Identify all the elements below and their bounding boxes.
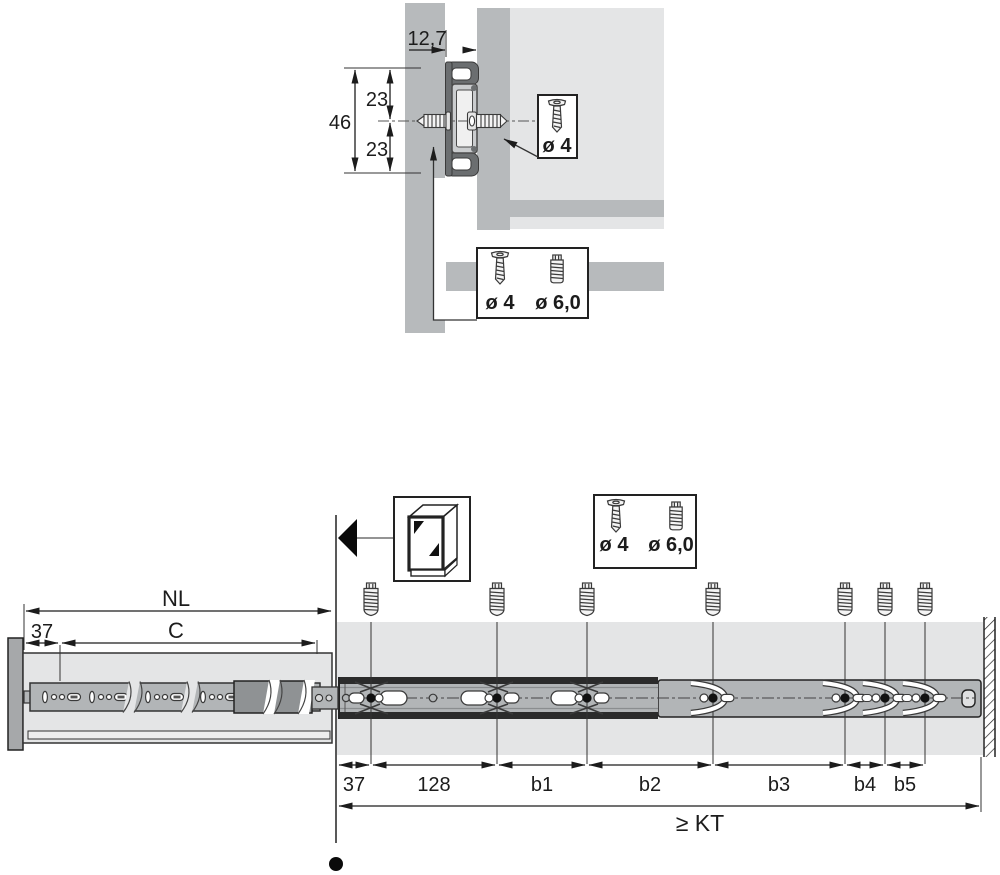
cabinet-depth-dimension: ≥ KT xyxy=(339,757,981,836)
pan-head-screw-icon xyxy=(551,255,563,283)
c-length-label: C xyxy=(168,618,184,643)
front-edge-triangle-marker xyxy=(338,519,357,557)
drawer-front-panel xyxy=(8,638,23,750)
cabinet-3d-icon xyxy=(409,505,457,576)
datum-dot xyxy=(329,857,343,871)
nominal-length-label: NL xyxy=(162,586,190,611)
gap-width-label: 12,7 xyxy=(408,28,447,50)
mounting-screw-icon xyxy=(490,583,504,616)
cabinet-icon-box xyxy=(394,497,470,581)
spacing-b3-label: b3 xyxy=(768,774,790,796)
side-screws-callout-box-bottom: ø 4 ø 6,0 xyxy=(594,495,696,568)
mounting-screw-icon xyxy=(706,583,720,616)
mounting-screw-icon xyxy=(838,583,852,616)
height-total-label: 46 xyxy=(329,112,351,134)
mounting-cross-section: 12,7 46 23 23 ø 4 ø 4 ø 6,0 xyxy=(329,3,664,333)
front-offset-label: 37 xyxy=(31,621,53,643)
drawer-body-section xyxy=(510,8,664,229)
hole-spacing-dimensions: 37 128 b1 b2 b3 b4 b5 xyxy=(339,765,923,796)
drawer-side-view xyxy=(8,638,338,750)
drawer-slide-installation-diagram: 12,7 46 23 23 ø 4 ø 4 ø 6,0 xyxy=(0,0,1000,875)
spacing-b2-label: b2 xyxy=(639,774,661,796)
side-screws-callout-box-top: ø 4 ø 6,0 xyxy=(477,248,588,318)
mounting-screw-icon xyxy=(878,583,892,616)
mounting-screw-icon xyxy=(918,583,932,616)
screw-d4-label: ø 4 xyxy=(600,534,630,556)
drawer-screw-label: ø 4 xyxy=(543,135,573,157)
spacing-b4-label: b4 xyxy=(854,774,876,796)
cabinet-back-panel-hatch xyxy=(984,617,995,757)
screw-d6-label: ø 6,0 xyxy=(648,534,694,556)
mounting-screws-row xyxy=(364,583,932,616)
screw-d6-label: ø 6,0 xyxy=(535,292,581,314)
spacing-b1-label: b1 xyxy=(531,774,553,796)
height-upper-label: 23 xyxy=(366,89,388,111)
height-lower-label: 23 xyxy=(366,139,388,161)
cabinet-depth-label: ≥ KT xyxy=(676,810,724,836)
drawer-bottom-panel xyxy=(510,200,664,217)
ball-bearing-bottom xyxy=(471,146,477,152)
drawer-bottom-edge xyxy=(28,731,330,739)
mounting-screw-icon xyxy=(580,583,594,616)
pan-head-screw-icon xyxy=(670,502,682,530)
panel-notch xyxy=(433,178,445,320)
screw-d4-label: ø 4 xyxy=(486,292,516,314)
ball-bearing-top xyxy=(471,85,477,91)
spacing-128-label: 128 xyxy=(417,774,450,796)
spacing-37-label: 37 xyxy=(343,774,365,796)
spacing-b5-label: b5 xyxy=(894,774,916,796)
diagram-canvas: 12,7 46 23 23 ø 4 ø 4 ø 6,0 xyxy=(0,0,1000,875)
mounting-screw-icon xyxy=(364,583,378,616)
side-view-hole-pattern: ø 4 ø 6,0 xyxy=(8,495,995,871)
